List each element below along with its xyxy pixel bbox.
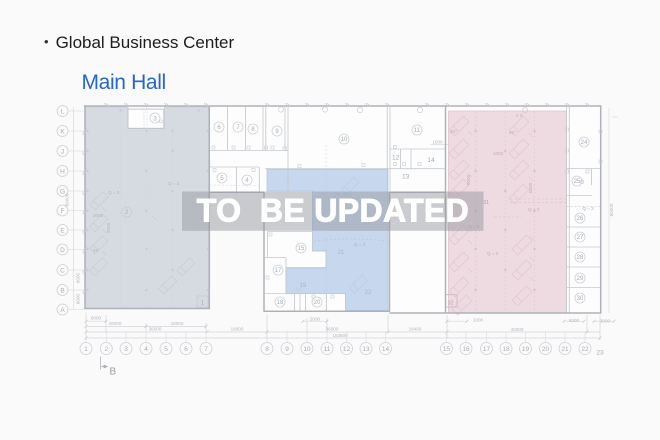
svg-text:Q = 3: Q = 3: [487, 251, 499, 256]
svg-text:Q = 3: Q = 3: [528, 207, 540, 212]
svg-text:6000: 6000: [466, 174, 471, 185]
svg-text:15: 15: [298, 246, 305, 252]
svg-text:17: 17: [275, 268, 282, 274]
svg-text:6000: 6000: [91, 316, 102, 321]
svg-text:D: D: [60, 247, 65, 254]
svg-text:9: 9: [285, 346, 289, 353]
svg-text:18: 18: [277, 300, 284, 306]
svg-text:6: 6: [184, 346, 188, 353]
svg-text:24: 24: [581, 140, 588, 146]
svg-text:21: 21: [561, 346, 569, 353]
svg-text:1000: 1000: [432, 139, 443, 144]
svg-text:E: E: [60, 227, 65, 234]
svg-text:B: B: [60, 287, 64, 294]
svg-text:60000: 60000: [65, 193, 70, 206]
svg-text:H: H: [60, 168, 65, 175]
svg-text:J: J: [61, 148, 64, 155]
svg-text:31: 31: [483, 200, 489, 206]
svg-text:4: 4: [144, 346, 148, 353]
svg-text:45000: 45000: [511, 327, 524, 332]
svg-text:6000: 6000: [569, 318, 580, 323]
svg-text:12: 12: [392, 155, 400, 162]
svg-text:60000: 60000: [609, 203, 614, 216]
svg-text:3: 3: [124, 346, 128, 353]
svg-text:28: 28: [577, 255, 584, 261]
svg-text:F: F: [61, 208, 65, 215]
svg-text:6000: 6000: [76, 272, 81, 283]
svg-text:19: 19: [522, 346, 530, 353]
svg-text:18000: 18000: [109, 321, 122, 326]
svg-text:14: 14: [382, 346, 390, 353]
svg-text:29: 29: [577, 276, 584, 282]
svg-text:K: K: [60, 128, 65, 135]
svg-text:TO BE UPDATED: TO BE UPDATED: [197, 193, 469, 229]
svg-text:2000: 2000: [93, 213, 104, 218]
svg-text:2 3: 2 3: [516, 113, 523, 118]
svg-text:18000: 18000: [231, 327, 244, 332]
svg-text:16: 16: [462, 346, 470, 353]
svg-text:L: L: [61, 108, 65, 115]
svg-text:1000: 1000: [493, 151, 504, 156]
svg-text:23: 23: [596, 350, 604, 357]
svg-text:1000: 1000: [473, 317, 484, 322]
svg-text:22: 22: [365, 290, 372, 296]
svg-text:13: 13: [362, 346, 370, 353]
svg-text:13: 13: [402, 174, 410, 181]
svg-text:6000: 6000: [528, 182, 533, 193]
svg-text:30: 30: [577, 296, 584, 302]
svg-text:14: 14: [427, 157, 435, 164]
svg-text:27: 27: [577, 235, 584, 241]
svg-text:6000: 6000: [76, 293, 81, 304]
svg-text:21: 21: [338, 250, 345, 256]
svg-text:B: B: [110, 367, 117, 378]
svg-text:11: 11: [414, 128, 421, 134]
svg-text:17: 17: [483, 346, 491, 353]
svg-text:A: A: [60, 307, 65, 314]
svg-text:7: 7: [204, 346, 208, 353]
svg-text:Q = 3: Q = 3: [582, 206, 594, 211]
svg-text:Q = 3: Q = 3: [108, 190, 120, 195]
svg-text:3000: 3000: [600, 318, 611, 323]
svg-text:45°: 45°: [93, 248, 100, 253]
svg-text:45°: 45°: [509, 130, 516, 135]
svg-text:25: 25: [574, 179, 581, 185]
svg-text:18400: 18400: [409, 327, 422, 332]
svg-text:32: 32: [448, 300, 454, 306]
svg-text:10: 10: [341, 137, 348, 143]
svg-text:18: 18: [502, 346, 510, 353]
svg-text:8: 8: [265, 346, 269, 353]
svg-text:45°: 45°: [450, 129, 457, 134]
svg-text:12: 12: [343, 346, 351, 353]
svg-text:9000: 9000: [106, 222, 111, 233]
svg-text:C: C: [60, 267, 65, 274]
svg-text:36000: 36000: [326, 327, 339, 332]
svg-text:18000: 18000: [171, 321, 184, 326]
svg-text:Q = 3: Q = 3: [168, 181, 180, 186]
svg-text:22: 22: [581, 346, 589, 353]
svg-text:10: 10: [303, 346, 311, 353]
svg-text:2: 2: [104, 346, 108, 353]
svg-text:26: 26: [577, 216, 584, 222]
svg-text:5: 5: [164, 346, 168, 353]
svg-text:36000: 36000: [149, 327, 162, 332]
svg-text:20: 20: [542, 346, 550, 353]
svg-text:11: 11: [324, 346, 331, 353]
svg-text:20: 20: [314, 300, 321, 306]
svg-text:Q = 3: Q = 3: [354, 242, 366, 247]
svg-text:19: 19: [300, 283, 307, 289]
svg-text:15: 15: [443, 346, 451, 353]
svg-text:1: 1: [84, 346, 88, 353]
svg-text:2000: 2000: [310, 317, 321, 322]
svg-text:153600: 153600: [332, 333, 348, 338]
